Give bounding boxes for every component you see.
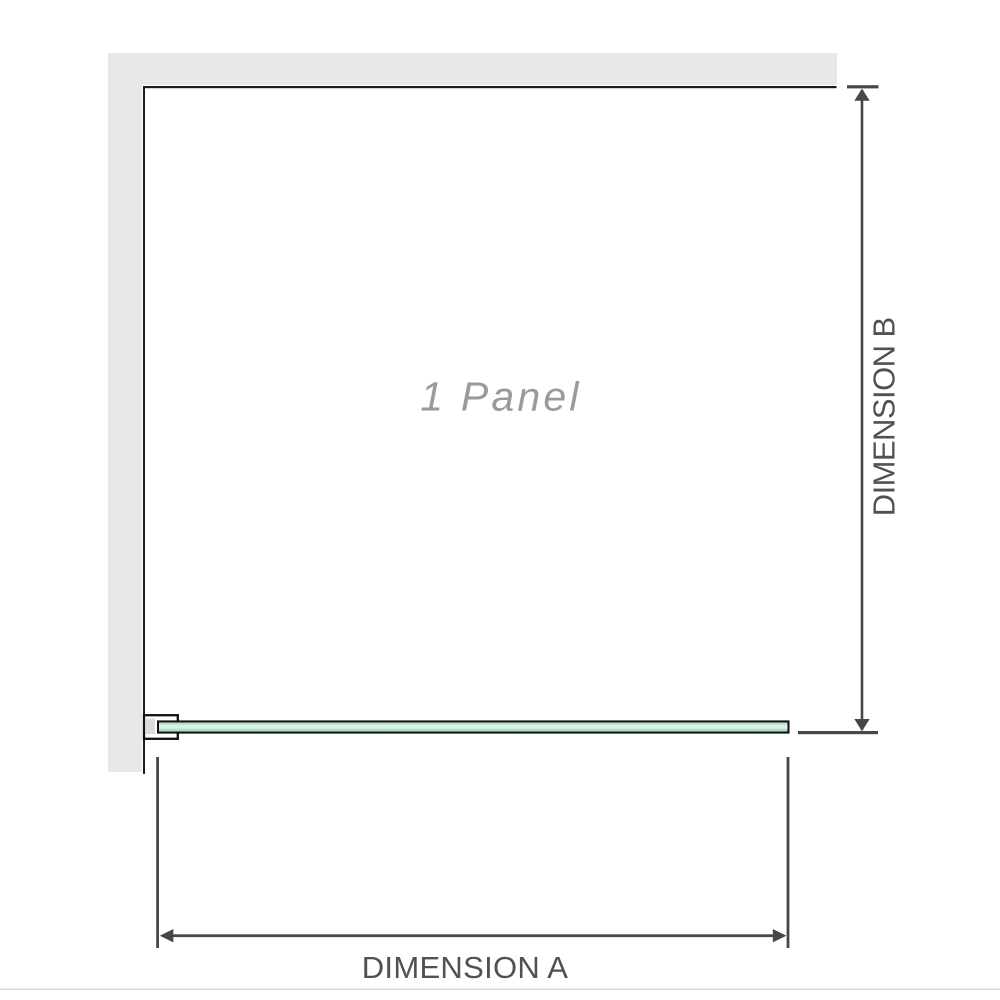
svg-text:1 Panel: 1 Panel [420, 374, 581, 420]
svg-text:DIMENSION A: DIMENSION A [362, 950, 569, 985]
svg-text:DIMENSION B: DIMENSION B [867, 317, 902, 516]
